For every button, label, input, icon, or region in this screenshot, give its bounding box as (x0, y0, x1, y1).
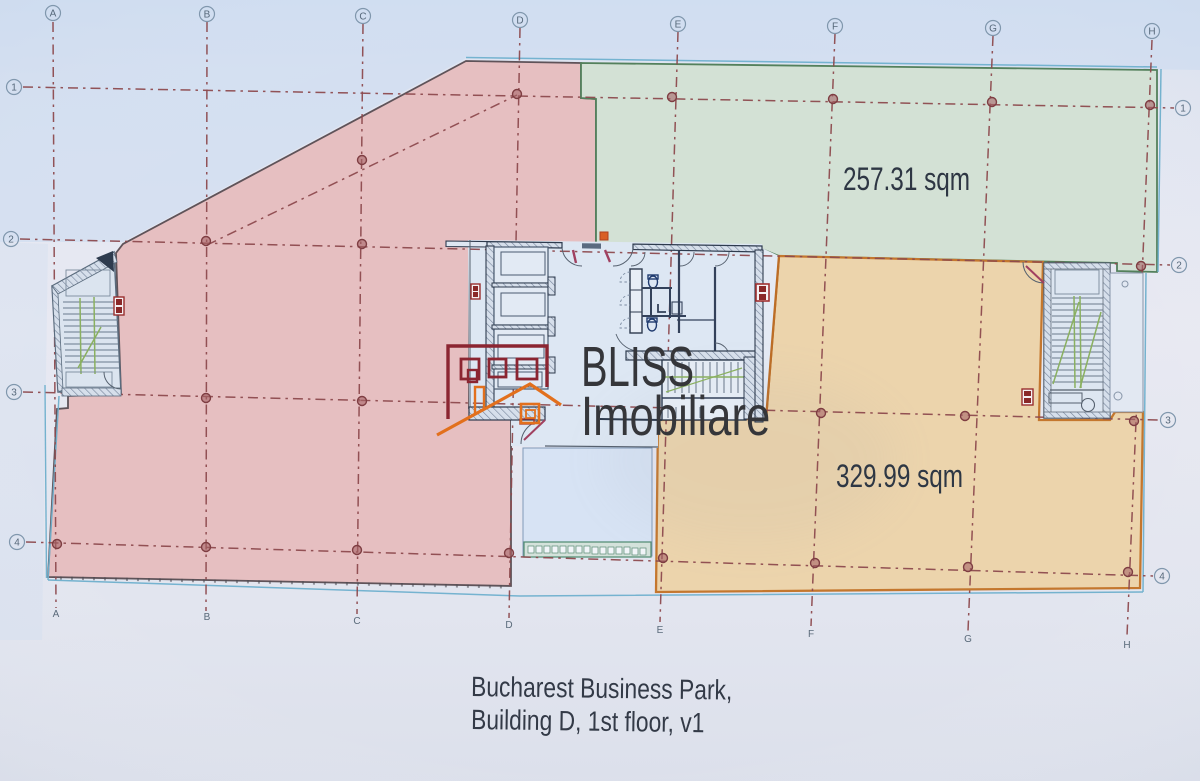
svg-text:H: H (1148, 27, 1155, 38)
svg-text:C: C (359, 12, 366, 23)
svg-text:A: A (53, 609, 60, 620)
svg-text:F: F (832, 22, 838, 33)
svg-text:C: C (353, 616, 360, 627)
svg-text:H: H (1123, 640, 1130, 651)
svg-text:257.31 sqm: 257.31 sqm (843, 162, 970, 198)
svg-text:4: 4 (1159, 572, 1165, 583)
svg-text:1: 1 (1180, 104, 1186, 115)
svg-text:G: G (964, 634, 972, 645)
svg-text:Imobiliare: Imobiliare (581, 385, 770, 447)
svg-text:2: 2 (1176, 261, 1182, 272)
svg-text:E: E (657, 625, 664, 636)
svg-text:Building D, 1st floor, v1: Building D, 1st floor, v1 (471, 705, 705, 739)
svg-text:1: 1 (11, 83, 17, 94)
svg-text:E: E (675, 20, 682, 31)
svg-text:B: B (204, 612, 211, 623)
svg-text:4: 4 (14, 538, 20, 549)
svg-text:329.99 sqm: 329.99 sqm (836, 459, 963, 495)
svg-text:G: G (989, 24, 997, 35)
svg-text:B: B (204, 10, 211, 21)
svg-text:2: 2 (8, 235, 14, 246)
svg-text:3: 3 (11, 388, 17, 399)
svg-text:A: A (50, 9, 57, 20)
svg-text:Bucharest Business Park,: Bucharest Business Park, (471, 672, 733, 706)
svg-text:3: 3 (1165, 416, 1171, 427)
svg-text:D: D (505, 620, 512, 631)
svg-text:F: F (808, 629, 814, 640)
svg-text:D: D (516, 16, 523, 27)
